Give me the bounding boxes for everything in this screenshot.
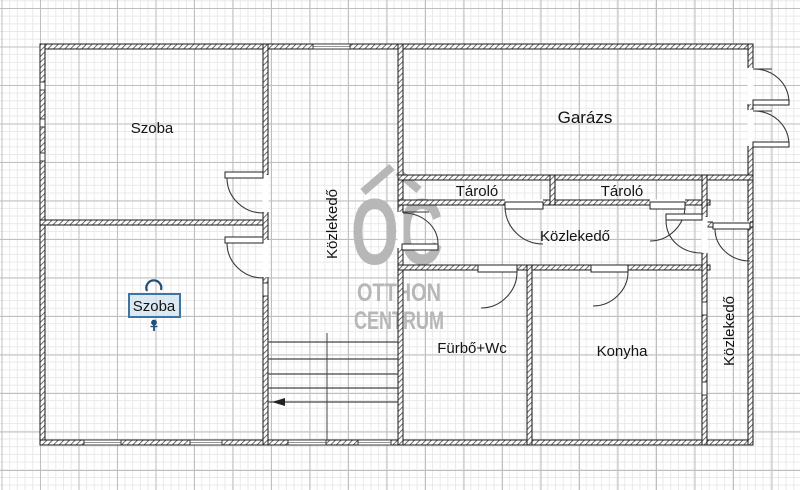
anchor-pin-icon[interactable] bbox=[151, 320, 158, 331]
window-symbol bbox=[263, 283, 268, 296]
door-symbol bbox=[402, 244, 438, 250]
door-symbol bbox=[591, 265, 628, 272]
door-swing-arc bbox=[666, 220, 702, 253]
room-label-furdo-wc[interactable]: Fürbő+Wc bbox=[437, 340, 507, 357]
door-symbol bbox=[666, 214, 702, 220]
stair-direction-arrow-icon bbox=[272, 398, 285, 406]
wall bbox=[40, 44, 753, 49]
selected-label-group[interactable]: Szoba bbox=[129, 280, 180, 331]
door-swing-arc bbox=[593, 272, 628, 306]
door-symbol bbox=[505, 202, 543, 209]
wall bbox=[398, 265, 710, 270]
door-swing-arc bbox=[754, 69, 789, 103]
door-symbol bbox=[478, 265, 517, 272]
room-label-szoba-bottom[interactable]: Szoba bbox=[133, 298, 176, 315]
door-symbol bbox=[225, 237, 263, 243]
door-swing-arc bbox=[505, 206, 543, 244]
door-symbol bbox=[713, 223, 750, 229]
floor-plan-canvas: OC OTTHON CENTRUM bbox=[0, 0, 800, 490]
door-swing-arc bbox=[715, 229, 750, 261]
window-symbol bbox=[702, 302, 707, 315]
room-label-tarolo-2[interactable]: Tároló bbox=[601, 183, 644, 200]
door-swing-arc bbox=[227, 243, 263, 278]
door-symbol bbox=[753, 142, 789, 147]
room-label-kozlekedo-middle[interactable]: Közlekedő bbox=[324, 189, 341, 259]
door-symbol bbox=[225, 172, 263, 178]
window-symbol bbox=[702, 382, 707, 395]
door-swing-arc bbox=[227, 178, 263, 213]
wall bbox=[748, 44, 753, 445]
door-swing-arc bbox=[754, 111, 789, 145]
room-label-konyha[interactable]: Konyha bbox=[597, 343, 649, 360]
room-label-tarolo-1[interactable]: Tároló bbox=[456, 183, 499, 200]
wall bbox=[398, 175, 753, 180]
wall bbox=[527, 265, 532, 445]
wall bbox=[40, 220, 268, 225]
room-label-szoba-top[interactable]: Szoba bbox=[131, 120, 174, 137]
door-swing-arc bbox=[481, 272, 517, 308]
wall bbox=[550, 175, 555, 205]
door-symbol bbox=[753, 100, 789, 105]
window-symbol bbox=[40, 82, 45, 90]
door-symbol bbox=[650, 202, 685, 209]
room-label-kozlekedo-right[interactable]: Közlekedő bbox=[721, 296, 738, 366]
wall bbox=[40, 440, 753, 445]
staircase bbox=[268, 333, 398, 440]
rotate-handle[interactable] bbox=[146, 280, 161, 291]
room-label-kozlekedo-center[interactable]: Közlekedő bbox=[540, 228, 610, 245]
window-symbol bbox=[40, 153, 45, 161]
door-swing-arc bbox=[650, 206, 685, 241]
room-label-garazs[interactable]: Garázs bbox=[558, 108, 613, 127]
wall bbox=[40, 44, 45, 445]
window-symbol bbox=[40, 119, 45, 127]
floor-plan-svg: OC OTTHON CENTRUM bbox=[0, 0, 800, 490]
